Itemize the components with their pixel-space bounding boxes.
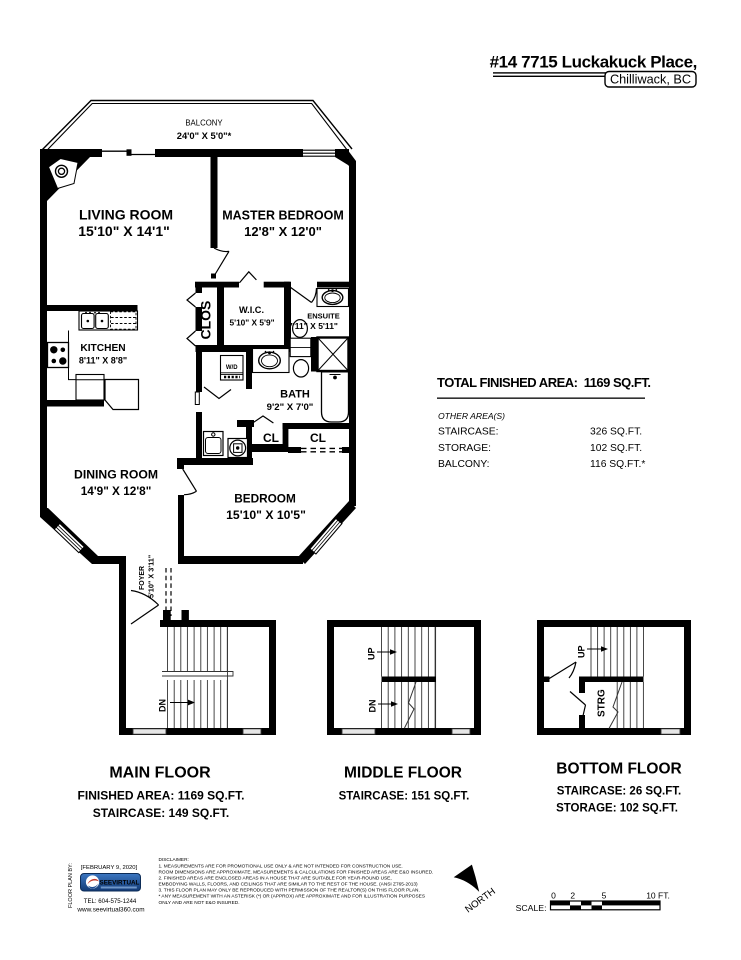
svg-text:TEL: 604-575-1244: TEL: 604-575-1244 [84,898,137,905]
svg-text:MAIN FLOOR: MAIN FLOOR [109,765,211,782]
svg-text:STRG: STRG [597,689,608,717]
svg-text:ONLY AND ARE NOT E&O INSURED.: ONLY AND ARE NOT E&O INSURED. [159,900,240,906]
svg-text:STORAGE: 102 SQ.FT.: STORAGE: 102 SQ.FT. [556,803,678,815]
svg-text:2. FINISHED AREAS ARE ENCLOSED: 2. FINISHED AREAS ARE ENCLOSED AREAS IN … [159,875,392,881]
svg-text:1. MEASUREMENTS ARE FOR PROMOT: 1. MEASUREMENTS ARE FOR PROMOTIONAL USE … [159,863,403,869]
svg-text:FOYER: FOYER [139,566,146,590]
svg-text:10 FT.: 10 FT. [646,891,670,901]
svg-text:116 SQ.FT.*: 116 SQ.FT.* [590,459,645,470]
svg-text:OTHER AREA(S): OTHER AREA(S) [438,411,505,421]
svg-text:8'11" X 8'8": 8'11" X 8'8" [79,356,127,366]
svg-text:MASTER BEDROOM: MASTER BEDROOM [222,209,344,223]
svg-text:#14 7715 Luckakuck Place,: #14 7715 Luckakuck Place, [490,53,697,72]
svg-text:2: 2 [570,891,575,901]
svg-text:14'9" X 12'8": 14'9" X 12'8" [81,484,152,498]
svg-text:Chilliwack, BC: Chilliwack, BC [610,73,691,87]
svg-text:UP: UP [577,645,587,658]
svg-text:www.seevirtual360.com: www.seevirtual360.com [76,907,144,914]
svg-text:FLOOR PLAN BY:: FLOOR PLAN BY: [68,863,74,908]
svg-text:15'10" X 14'1": 15'10" X 14'1" [78,223,170,239]
svg-text:STAIRCASE:: STAIRCASE: [438,427,498,438]
svg-text:BALCONY: BALCONY [185,119,223,128]
svg-text:BALCONY:: BALCONY: [438,459,490,470]
svg-text:326 SQ.FT.: 326 SQ.FT. [590,427,642,438]
svg-text:SCALE:: SCALE: [516,903,547,913]
svg-text:9'2" X 7'0": 9'2" X 7'0" [267,402,314,413]
svg-text:* ANY MEASUREMENT WITH AN ASTE: * ANY MEASUREMENT WITH AN ASTERISK (*) O… [159,894,426,900]
svg-text:STAIRCASE: 149 SQ.FT.: STAIRCASE: 149 SQ.FT. [93,806,229,820]
svg-text:CL: CL [263,431,279,445]
svg-text:ROOM DIMENSIONS ARE APPROXIMAT: ROOM DIMENSIONS ARE APPROXIMATE. MEASURE… [159,869,434,875]
svg-text:DINING ROOM: DINING ROOM [74,468,158,482]
svg-text:0: 0 [551,891,556,901]
svg-text:BEDROOM: BEDROOM [234,492,296,506]
svg-text:STORAGE:: STORAGE: [438,443,491,454]
svg-text:DN: DN [158,699,168,712]
svg-text:[FEBRUARY 9, 2020]: [FEBRUARY 9, 2020] [81,865,138,871]
svg-text:UP: UP [367,647,377,660]
svg-text:DN: DN [368,700,378,713]
svg-text:STAIRCASE: 26 SQ.FT.: STAIRCASE: 26 SQ.FT. [557,786,681,798]
svg-text:W.I.C.: W.I.C. [239,305,264,315]
svg-text:5: 5 [602,891,607,901]
svg-text:CLOS: CLOS [198,301,214,340]
svg-text:EMBODYING WALLS, FLOORS, AND C: EMBODYING WALLS, FLOORS, AND CEILINGS TH… [159,882,419,888]
svg-text:SEEVIRTUAL: SEEVIRTUAL [100,879,140,886]
svg-text:5'10" X 5'9": 5'10" X 5'9" [229,318,274,328]
svg-text:CL: CL [310,431,326,445]
svg-text:LIVING ROOM: LIVING ROOM [79,207,173,223]
svg-text:BATH: BATH [280,389,310,401]
svg-text:DISCLAIMER:: DISCLAIMER: [159,857,189,863]
svg-text:TOTAL FINISHED AREA: 1169 SQ.: TOTAL FINISHED AREA: 1169 SQ.FT. [437,375,650,390]
svg-text:12'8" X 12'0": 12'8" X 12'0" [244,224,322,239]
svg-text:BOTTOM FLOOR: BOTTOM FLOOR [556,761,681,778]
svg-text:15'10" X 10'5": 15'10" X 10'5" [226,508,306,522]
svg-text:24'0" X 5'0"*: 24'0" X 5'0"* [177,130,232,141]
svg-text:KITCHEN: KITCHEN [80,343,125,354]
svg-text:3. THIS FLOOR PLAN MAY ONLY BE: 3. THIS FLOOR PLAN MAY ONLY BE REPRODUCE… [159,888,420,894]
svg-text:ENSUITE: ENSUITE [307,312,340,321]
svg-text:7'11" X 5'11": 7'11" X 5'11" [288,321,338,331]
svg-text:W/D: W/D [226,365,238,371]
svg-text:FINISHED AREA: 1169 SQ.FT.: FINISHED AREA: 1169 SQ.FT. [78,789,245,803]
svg-text:STAIRCASE: 151 SQ.FT.: STAIRCASE: 151 SQ.FT. [339,791,470,803]
svg-text:MIDDLE FLOOR: MIDDLE FLOOR [344,765,462,782]
svg-text:5'10" X 3'11": 5'10" X 3'11" [147,555,156,598]
svg-text:102 SQ.FT.: 102 SQ.FT. [590,443,642,454]
